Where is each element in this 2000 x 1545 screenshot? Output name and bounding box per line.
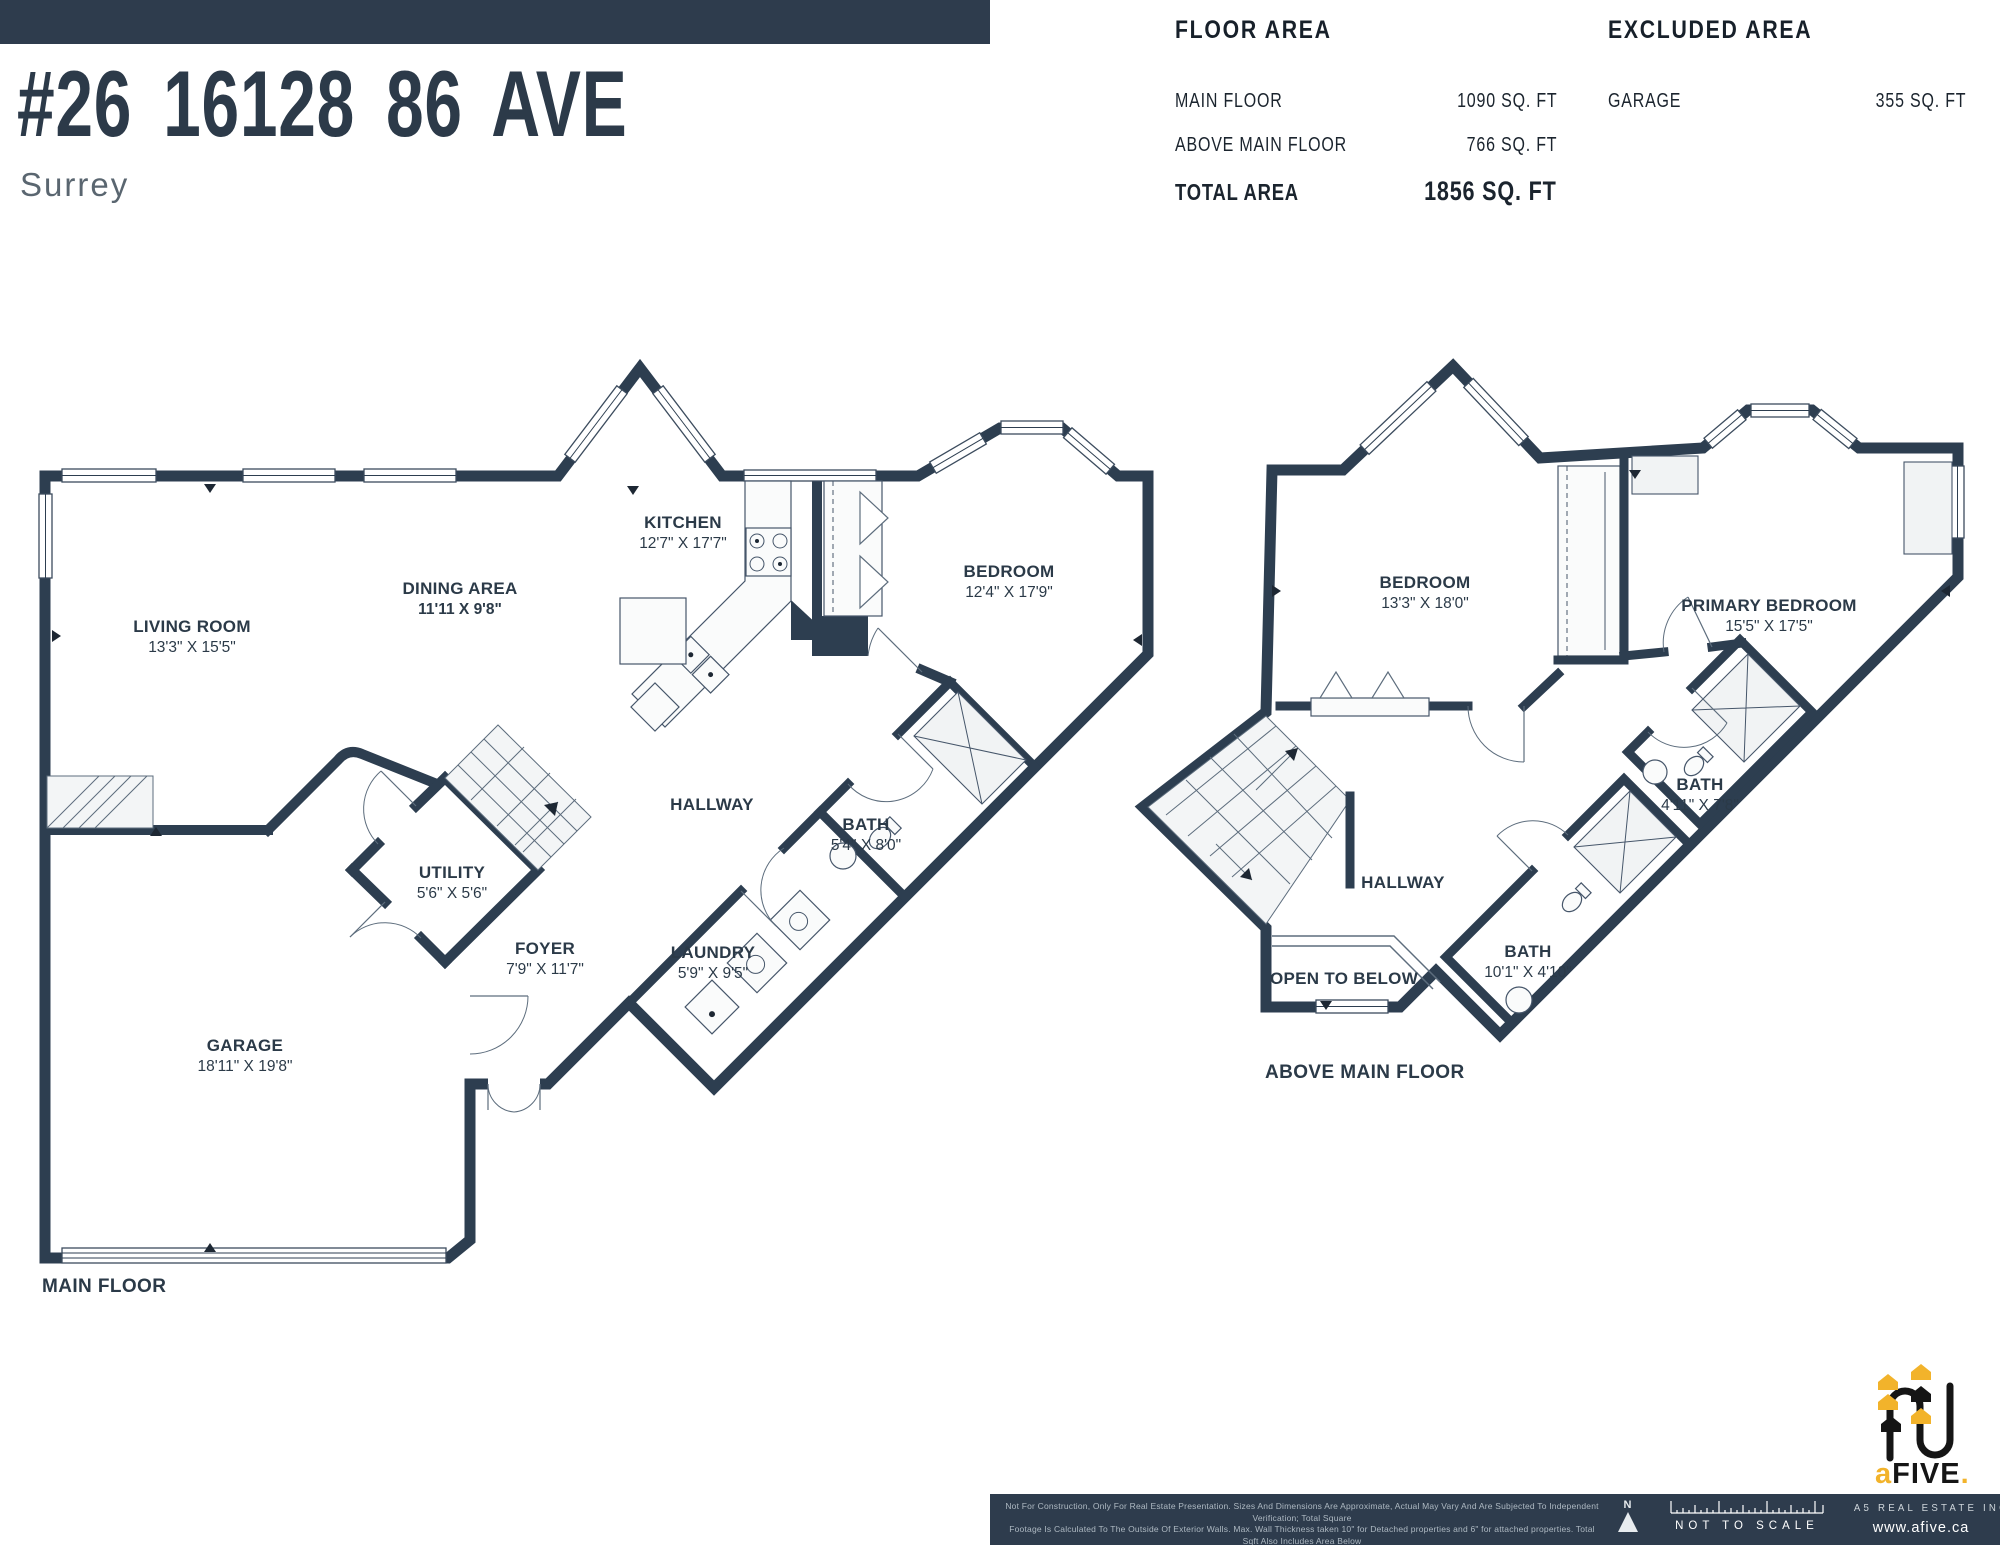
room-label-bedroom: BEDROOM [964,562,1055,581]
row-label: GARAGE [1608,90,1681,113]
room-label-hallway: HALLWAY [1361,873,1445,892]
total-label: TOTAL AREA [1175,179,1299,206]
compass-arrow [1618,1512,1638,1532]
room-label-dining: DINING AREA [402,579,517,598]
room-dims-laundry: 5'9" X 9'5" [678,965,748,982]
row-label: ABOVE MAIN FLOOR [1175,134,1347,157]
room-dims-kitchen: 12'7" X 17'7" [639,535,727,552]
table-total-row: TOTAL AREA 1856 SQ. FT [1175,176,1557,207]
room-label-laundry: LAUNDRY [671,943,756,962]
stove-icon [746,528,791,576]
table-row: MAIN FLOOR 1090 SQ. FT [1175,90,1557,113]
room-label-utility: UTILITY [419,863,486,882]
floorplan-sheet: #26 16128 86 AVE Surrey FLOOR AREA MAIN … [0,0,2000,1545]
stairs-corner [47,776,153,828]
room-label-bath1: BATH [1676,775,1723,794]
excluded-area-table: EXCLUDED AREA GARAGE 355 SQ. FT [1608,16,1966,146]
room-dims-foyer: 7'9" X 11'7" [506,961,584,978]
logo-wordmark: aFIVE. [1875,1458,1970,1490]
room-label-garage: GARAGE [207,1036,283,1055]
front-entry-door [488,1076,540,1112]
room-dims-dining: 11'11 X 9'8" [418,601,502,618]
closet [824,481,888,616]
room-dims-bath2: 10'1" X 4'10" [1484,964,1572,981]
table-row: GARAGE 355 SQ. FT [1608,90,1966,113]
room-dims-bath1: 4'11" X 7'8" [1661,797,1739,814]
company-info: A5 REAL ESTATE INC. www.afive.ca [1848,1502,1994,1536]
plan-caption-main: MAIN FLOOR [42,1276,166,1297]
above-floor-outline [1143,366,1958,1035]
compass-n-label: N [1612,1499,1644,1511]
row-label: MAIN FLOOR [1175,90,1283,113]
primary-closet [1904,462,1952,554]
disclaimer-text: Not For Construction, Only For Real Esta… [1002,1501,1602,1545]
closet [1558,466,1620,656]
compass-icon: N [1612,1499,1644,1532]
room-label-bedroom: BEDROOM [1380,573,1471,592]
room-label-foyer: FOYER [515,939,575,958]
total-value: 1856 SQ. FT [1425,176,1557,207]
room-label-hallway: HALLWAY [670,795,754,814]
floor-area-table: FLOOR AREA MAIN FLOOR 1090 SQ. FT ABOVE … [1175,16,1557,226]
room-dims-living: 13'3" X 15'5" [148,639,236,656]
excluded-area-title: EXCLUDED AREA [1608,16,1912,45]
row-value: 1090 SQ. FT [1457,90,1557,113]
room-dims-primary: 15'5" X 17'5" [1725,618,1813,635]
garage-door [62,1248,446,1263]
room-label-primary: PRIMARY BEDROOM [1681,596,1856,615]
room-label-living: LIVING ROOM [133,617,251,636]
company-website: www.afive.ca [1848,1520,1994,1536]
room-dims-utility: 5'6" X 5'6" [417,885,487,902]
page-title: #26 16128 86 AVE [17,50,628,158]
room-dims-garage: 18'11" X 19'8" [197,1058,292,1075]
fridge [620,598,686,664]
top-accent-bar [0,0,990,44]
city-subtitle: Surrey [20,166,129,204]
main-floor-plan: LIVING ROOM 13'3" X 15'5" DINING AREA 11… [30,280,1170,1310]
table-row: ABOVE MAIN FLOOR 766 SQ. FT [1175,134,1557,157]
afive-logo: aFIVE. [1868,1358,1976,1490]
company-name: A5 REAL ESTATE INC. [1854,1502,1988,1514]
row-value: 766 SQ. FT [1466,134,1557,157]
shelf [1632,456,1698,494]
footer-bar: Not For Construction, Only For Real Esta… [990,1494,2000,1545]
floor-area-title: FLOOR AREA [1175,16,1500,45]
room-dims-bath: 5'4" X 8'0" [831,837,901,854]
above-main-floor-plan: BEDROOM 13'3" X 18'0" PRIMARY BEDROOM 15… [1130,280,2000,1100]
disclaimer-line: Footage Is Calculated To The Outside Of … [1002,1524,1602,1545]
room-label-bath2: BATH [1504,942,1551,961]
disclaimer-line: Not For Construction, Only For Real Esta… [1002,1501,1602,1524]
room-dims-bedroom: 12'4" X 17'9" [965,584,1053,601]
plan-caption-above: ABOVE MAIN FLOOR [1265,1062,1465,1083]
logo-houses [1878,1364,1931,1432]
room-label-kitchen: KITCHEN [644,513,722,532]
ruler-icon [1667,1500,1827,1514]
row-value: 355 SQ. FT [1875,90,1966,113]
main-floor-outline [45,368,1148,1258]
not-to-scale-label: NOT TO SCALE [1658,1520,1836,1532]
room-label-bath: BATH [842,815,889,834]
not-to-scale: NOT TO SCALE [1658,1500,1836,1532]
room-label-open-below: OPEN TO BELOW [1270,969,1419,988]
room-dims-bedroom: 13'3" X 18'0" [1381,595,1469,612]
